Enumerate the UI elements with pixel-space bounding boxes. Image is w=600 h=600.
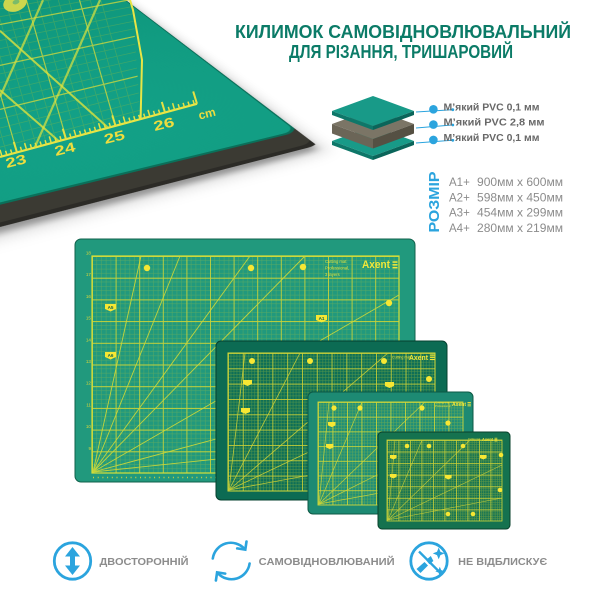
svg-text:A5: A5 [108,305,114,310]
svg-text:Axent: Axent [362,259,390,271]
svg-text:25: 25 [102,127,127,147]
svg-text:Cutting mat: Cutting mat [468,438,481,441]
svg-text:М’який PVC 2,8 мм: М’який PVC 2,8 мм [444,117,545,129]
svg-text:18: 18 [86,251,92,256]
svg-text:Professional: Professional [435,404,451,408]
svg-text:15: 15 [86,316,92,321]
svg-text:Cutting mat: Cutting mat [392,356,410,360]
svg-text:16: 16 [86,294,92,299]
svg-text:Axent: Axent [482,437,493,442]
svg-text:12: 12 [86,381,92,386]
svg-text:26: 26 [152,114,177,134]
svg-text:Cutting mat: Cutting mat [325,259,347,264]
svg-text:A4+: A4+ [449,223,470,235]
svg-text:280мм x 219мм: 280мм x 219мм [477,223,563,235]
svg-text:14: 14 [86,337,92,342]
svg-text:cm: cm [197,105,217,123]
svg-text:598мм x 450мм: 598мм x 450мм [477,192,563,204]
svg-text:Axent: Axent [452,402,466,408]
svg-text:A1+: A1+ [449,177,470,189]
svg-text:10: 10 [86,424,92,429]
svg-text:М’який PVC 0,1 мм: М’який PVC 0,1 мм [444,101,540,113]
svg-text:НЕ ВІДБЛИСКУЄ: НЕ ВІДБЛИСКУЄ [458,557,547,568]
svg-text:A6: A6 [108,353,114,358]
svg-text:САМОВІДНОВЛЮВАНИЙ: САМОВІДНОВЛЮВАНИЙ [259,556,395,568]
svg-text:11: 11 [86,402,91,407]
svg-text:900мм x 600мм: 900мм x 600мм [477,177,563,189]
svg-text:РОЗМІР: РОЗМІР [427,171,443,232]
svg-text:ДВОСТОРОННІЙ: ДВОСТОРОННІЙ [100,556,189,568]
svg-text:ДЛЯ РІЗАННЯ, ТРИШАРОВИЙ: ДЛЯ РІЗАННЯ, ТРИШАРОВИЙ [289,41,513,62]
svg-text:A3+: A3+ [449,208,470,220]
svg-text:A2+: A2+ [449,192,470,204]
svg-text:17: 17 [86,272,92,277]
svg-text:Professional,: Professional, [325,266,349,271]
svg-text:М’який PVC 0,1 мм: М’який PVC 0,1 мм [444,132,540,144]
svg-text:Axent: Axent [409,353,428,362]
svg-text:454мм x 299мм: 454мм x 299мм [477,208,563,220]
svg-text:A1: A1 [319,316,325,321]
svg-text:3 layers: 3 layers [325,272,340,277]
svg-text:13: 13 [86,359,92,364]
svg-text:КИЛИМОК САМОВІДНОВЛЮВАЛЬНИЙ: КИЛИМОК САМОВІДНОВЛЮВАЛЬНИЙ [235,21,571,42]
svg-text:9: 9 [88,446,91,451]
